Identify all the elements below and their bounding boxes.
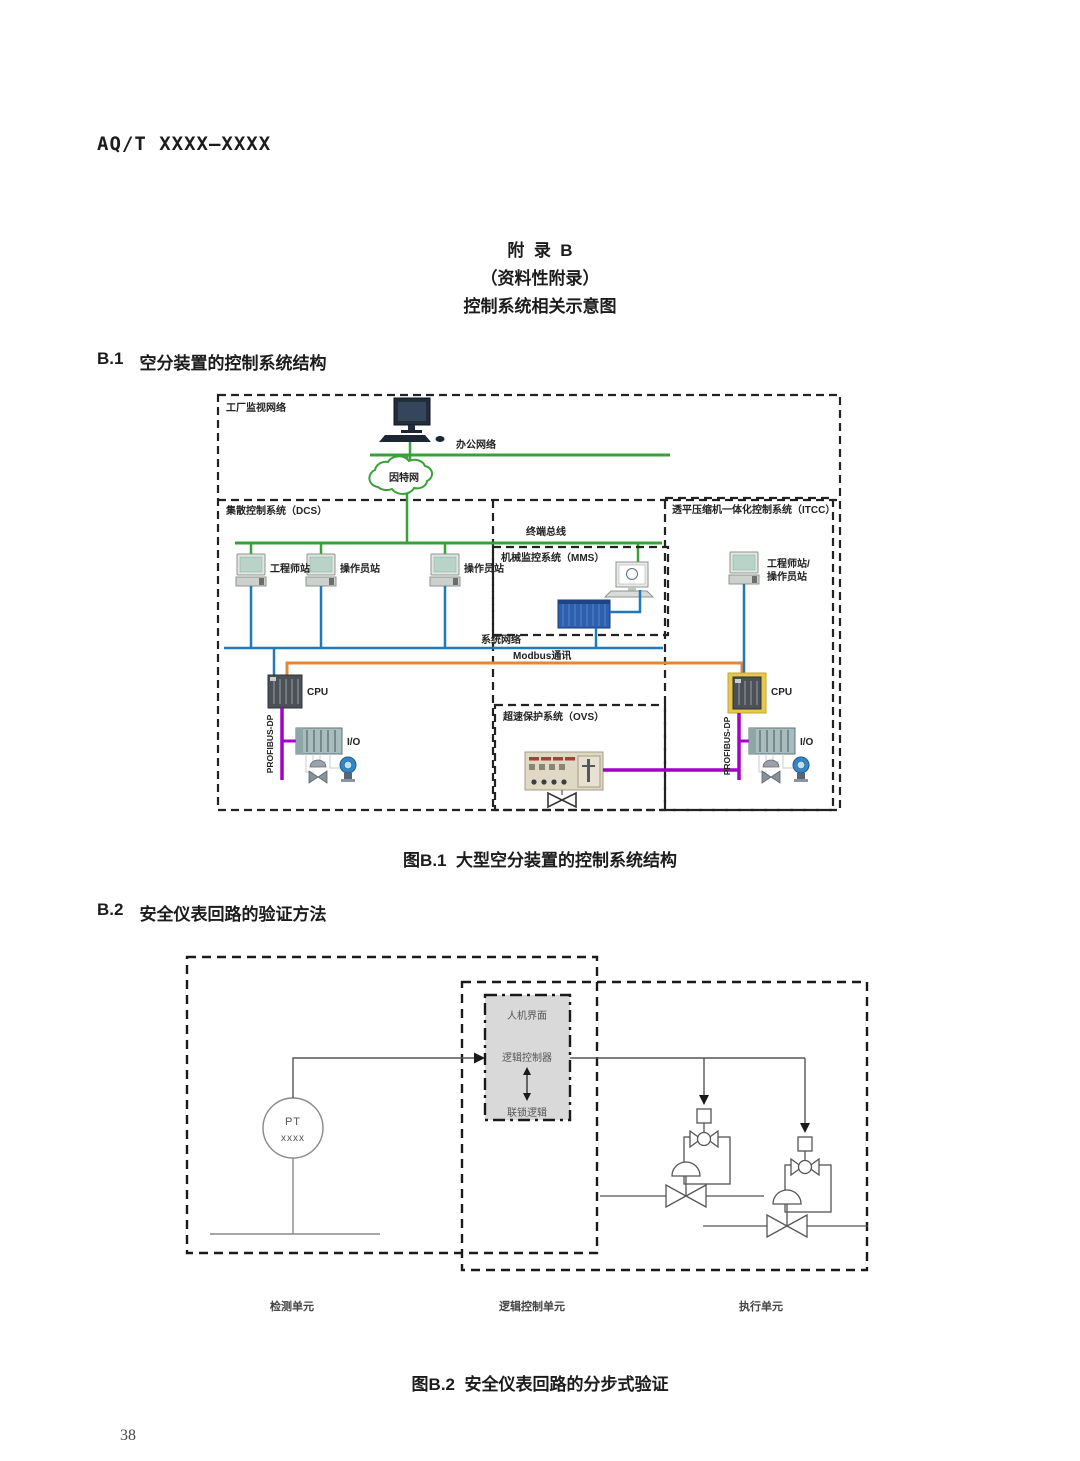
logic-control-unit-label: 逻辑控制单元 bbox=[499, 1299, 565, 1313]
io-right-label: I/O bbox=[800, 737, 814, 748]
io-module-icon bbox=[749, 728, 795, 754]
cpu-module-highlighted-icon bbox=[728, 673, 766, 713]
figure-b1-diagram: 工厂监视网络 集散控制系统（DCS） 透平压缩机一体化控制系统（ITCC） 办公… bbox=[210, 388, 850, 818]
ovs-label: 超速保护系统（OVS） bbox=[502, 710, 604, 723]
valve-body-icon bbox=[666, 1185, 686, 1207]
valve-icon bbox=[548, 793, 576, 807]
field-instruments-icon bbox=[309, 757, 356, 783]
appendix-title-block: 附 录 B （资料性附录） 控制系统相关示意图 bbox=[0, 237, 1080, 321]
mms-server-icon bbox=[558, 600, 610, 628]
internet-cloud-icon: 因特网 bbox=[369, 456, 432, 494]
section-b1-heading: B.1 空分装置的控制系统结构 bbox=[97, 349, 326, 374]
internet-label: 因特网 bbox=[389, 471, 419, 484]
system-network-label: 系统网络 bbox=[481, 633, 521, 646]
pt-transmitter-circle bbox=[263, 1098, 323, 1158]
hmi-label: 人机界面 bbox=[507, 1009, 547, 1022]
mms-label: 机械监控系统（MMS） bbox=[501, 551, 604, 564]
valve-body-icon bbox=[767, 1215, 787, 1237]
ws-engineer-label: 工程师站 bbox=[270, 562, 310, 575]
logic-controller-label: 逻辑控制器 bbox=[502, 1051, 552, 1064]
io-module-icon bbox=[296, 728, 342, 754]
interlock-logic-label: 联锁逻辑 bbox=[507, 1106, 547, 1119]
workstation-icon bbox=[729, 552, 759, 584]
profibus-right-label: PROFIBUS-DP bbox=[722, 716, 732, 775]
appendix-label: 附 录 B bbox=[0, 237, 1080, 265]
page-number: 38 bbox=[120, 1427, 136, 1445]
cpu-module-icon bbox=[268, 675, 302, 708]
section-b2-number: B.2 bbox=[97, 900, 123, 925]
field-instruments-icon bbox=[762, 757, 809, 783]
desktop-computer-icon bbox=[379, 398, 445, 442]
section-b1-number: B.1 bbox=[97, 349, 123, 374]
section-b2-title: 安全仪表回路的验证方法 bbox=[139, 900, 326, 925]
document-code: AQ/T XXXX—XXXX bbox=[97, 133, 271, 155]
workstation-icon bbox=[306, 554, 336, 586]
profibus-left-label: PROFIBUS-DP bbox=[265, 714, 275, 773]
execution-unit-label: 执行单元 bbox=[739, 1299, 783, 1313]
terminal-bus-label: 终端总线 bbox=[526, 525, 566, 538]
pt-tag-label: PT bbox=[285, 1116, 301, 1128]
figure-b2-diagram: 人机界面 逻辑控制器 联锁逻辑 PT xxxx bbox=[180, 948, 900, 1320]
ws-operator1-label: 操作员站 bbox=[340, 562, 380, 575]
ws-operator2-label: 操作员站 bbox=[464, 562, 504, 575]
ovs-panel-icon bbox=[525, 752, 603, 790]
section-b1-title: 空分装置的控制系统结构 bbox=[139, 349, 326, 374]
itcc-label: 透平压缩机一体化控制系统（ITCC） bbox=[672, 503, 835, 516]
valve1-arrow-head bbox=[699, 1095, 709, 1105]
shutdown-valve-assembly bbox=[703, 1137, 868, 1237]
actuator-dome-icon bbox=[773, 1190, 801, 1204]
itcc-ws-label1: 工程师站/ bbox=[767, 557, 810, 570]
section-b2-heading: B.2 安全仪表回路的验证方法 bbox=[97, 900, 326, 925]
signal-arrow-head bbox=[474, 1053, 485, 1064]
office-network-label: 办公网络 bbox=[456, 438, 496, 451]
modbus-label: Modbus通讯 bbox=[513, 649, 571, 662]
cpu-right-label: CPU bbox=[771, 687, 792, 698]
plant-network-label: 工厂监视网络 bbox=[226, 401, 286, 414]
pt-value-label: xxxx bbox=[281, 1133, 305, 1144]
modbus-line bbox=[287, 663, 742, 675]
figure-b2-caption: 图B.2 安全仪表回路的分步式验证 bbox=[0, 1370, 1080, 1395]
document-page: { "page": { "header": "AQ/T XXXX—XXXX", … bbox=[0, 0, 1080, 1461]
appendix-type: （资料性附录） bbox=[0, 265, 1080, 293]
shutdown-valve-assembly bbox=[600, 1109, 764, 1207]
detection-unit-label: 检测单元 bbox=[270, 1299, 314, 1313]
appendix-subject: 控制系统相关示意图 bbox=[0, 293, 1080, 321]
itcc-ws-label2: 操作员站 bbox=[767, 570, 807, 583]
mms-computer-icon bbox=[605, 562, 653, 597]
io-left-label: I/O bbox=[347, 737, 361, 748]
workstation-icon bbox=[430, 554, 460, 586]
pt-signal-line bbox=[293, 1058, 474, 1098]
figure-b1-caption: 图B.1 大型空分装置的控制系统结构 bbox=[0, 846, 1080, 871]
cpu-left-label: CPU bbox=[307, 687, 328, 698]
dcs-label: 集散控制系统（DCS） bbox=[225, 504, 327, 517]
actuator-dome-icon bbox=[672, 1162, 700, 1176]
valve2-arrow-head bbox=[800, 1123, 810, 1133]
workstation-icon bbox=[236, 554, 266, 586]
